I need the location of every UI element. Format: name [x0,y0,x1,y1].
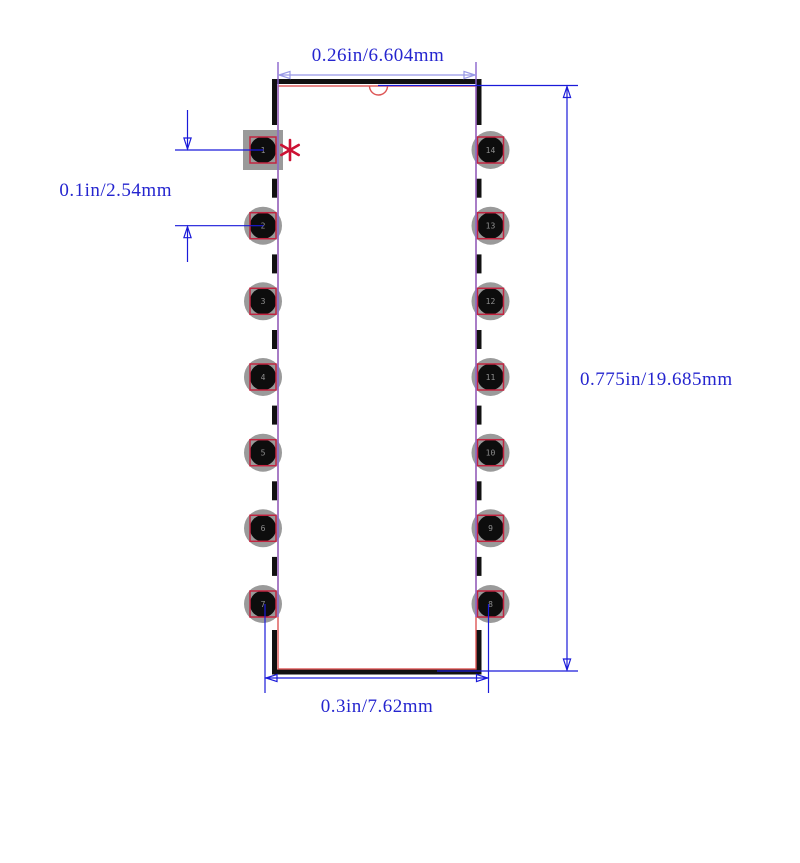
dimension-label: 0.26in/6.604mm [312,45,445,66]
dimension-left-pad-pitch: 0.1in/2.54mm [59,110,263,262]
pad-5: 5 [244,434,282,472]
pad-11: 11 [472,358,510,396]
pad-9: 9 [472,509,510,547]
dimension-top-body-width: 0.26in/6.604mm [278,45,476,617]
footprint-drawing: 1 2 3 4 5 6 [0,0,800,863]
pad-number: 5 [261,449,266,458]
dimension-label: 0.775in/19.685mm [580,369,733,390]
pad-number: 3 [261,297,266,306]
footprint-drawing-canvas: 1 2 3 4 5 6 [0,0,800,863]
pad-number: 12 [486,297,496,306]
pad-4: 4 [244,358,282,396]
pad-10: 10 [472,434,510,472]
dimension-label: 0.3in/7.62mm [321,696,434,717]
pad-number: 9 [488,524,493,533]
pad-14: 14 [472,131,510,169]
package-body-red-outline [278,86,476,669]
dimension-right-body-height: 0.775in/19.685mm [378,86,733,672]
dimension-label: 0.1in/2.54mm [59,180,172,201]
pad-3: 3 [244,282,282,320]
pad-number: 14 [486,146,496,155]
pad-number: 4 [261,373,266,382]
pad-number: 11 [486,373,496,382]
pad-12: 12 [472,282,510,320]
pad-number: 6 [261,524,266,533]
pad-8: 8 [472,585,510,623]
pad-number: 10 [486,449,496,458]
package-body-outline [272,79,482,674]
pin1-notch-arc [370,86,388,95]
dimension-bottom-row-spacing: 0.3in/7.62mm [265,604,489,717]
pads: 1 2 3 4 5 6 [243,130,510,623]
pad-7: 7 [244,585,282,623]
pad-6: 6 [244,509,282,547]
pin1-asterisk-icon [281,140,298,160]
pad-13: 13 [472,207,510,245]
pad-number: 13 [486,222,496,231]
